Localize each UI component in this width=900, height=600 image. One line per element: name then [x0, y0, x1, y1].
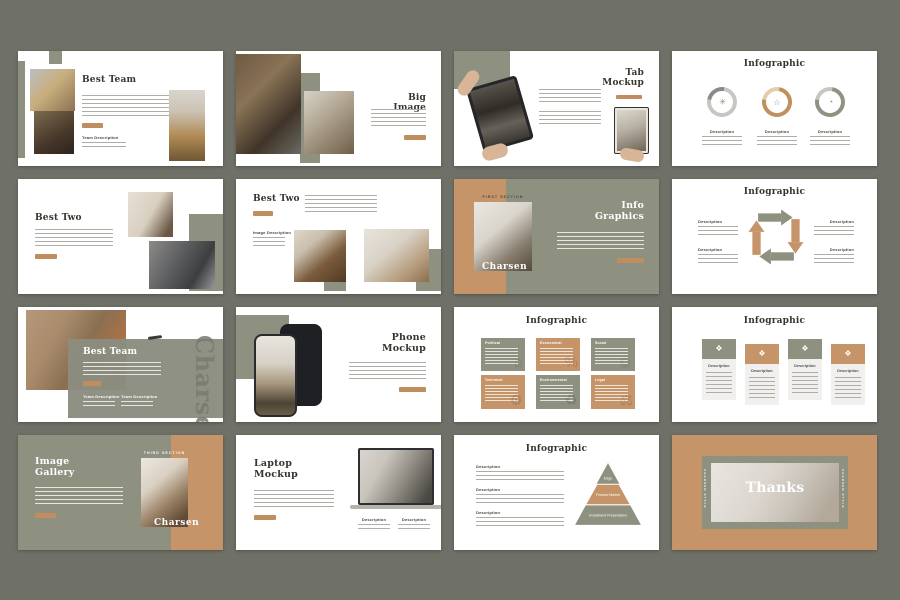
- greeked-text: [476, 494, 564, 504]
- box-label: Legal: [595, 378, 605, 382]
- description-label: Description: [757, 129, 797, 134]
- cta-button-graphic: [399, 387, 426, 392]
- greeked-paragraph: [254, 490, 334, 507]
- greeked-text: [476, 471, 564, 481]
- cta-button-graphic: [35, 513, 56, 518]
- description-label: Description: [476, 487, 500, 492]
- greeked-text: [476, 517, 564, 527]
- cta-button-graphic: [404, 135, 426, 140]
- description-label: Description: [698, 247, 722, 252]
- laptop-base: [350, 505, 441, 509]
- greeked-text: [253, 237, 285, 247]
- photo-office-overview: [236, 54, 301, 154]
- photo-portrait-coat: [169, 90, 205, 161]
- greeked-text: [814, 226, 854, 238]
- box-label: Economical: [540, 341, 562, 345]
- slide-thumb-laptop-mockup[interactable]: Laptop Mockup Description Description: [236, 435, 441, 550]
- cta-button-graphic: [253, 211, 273, 216]
- description-label: Description: [810, 129, 850, 134]
- greeked-paragraph: [83, 362, 161, 375]
- pestel-box-social: Social ☺: [591, 338, 635, 371]
- ornament-icon: ❖: [745, 344, 779, 364]
- greeked-text: [702, 136, 742, 147]
- info-card: ❖ Description: [831, 344, 865, 405]
- photo-walking-person: [128, 192, 173, 237]
- greeked-text: [835, 377, 861, 399]
- description-label: Description: [702, 129, 742, 134]
- description-label: Description: [814, 247, 854, 252]
- greeked-text: [698, 254, 738, 266]
- description-label: Description: [476, 510, 500, 515]
- team-description-label: Team Description: [121, 394, 157, 399]
- pestel-box-technical: Technical ⚙: [481, 375, 525, 409]
- slide-thumb-best-two-1[interactable]: Best Two: [18, 179, 223, 294]
- slide-thumb-infographic-pyramid[interactable]: Infographic Description Description Desc…: [454, 435, 659, 550]
- pie-chart-icon: ◔: [828, 98, 833, 107]
- slide-thumb-info-graphics[interactable]: First Section Charsen Info Graphics: [454, 179, 659, 294]
- greeked-paragraph: [371, 109, 426, 127]
- box-label: Technical: [485, 378, 503, 382]
- greeked-text: [358, 524, 390, 532]
- slide-title: Tab Mockup: [602, 68, 644, 88]
- slide-thumb-image-gallery[interactable]: Image Gallery Third Section Charsen: [18, 435, 223, 550]
- photo-person-laptop: [141, 458, 188, 527]
- donut-ring: ◔: [809, 81, 851, 123]
- greeked-paragraph: [305, 195, 377, 213]
- accent-square: [49, 51, 62, 64]
- slide-thumb-thanks[interactable]: Charsen Style Charsen Style Thanks: [672, 435, 877, 550]
- cta-button-graphic: [35, 254, 57, 259]
- slide-title: Thanks: [702, 481, 848, 497]
- donut-ring: ✳: [701, 81, 743, 123]
- box-label: Environmental: [540, 378, 567, 382]
- section-label: First Section: [474, 195, 532, 199]
- phone-device-front: [254, 334, 297, 417]
- description-label: Description: [396, 517, 432, 522]
- greeked-text: [749, 377, 775, 399]
- phone-screen-photo: [256, 336, 295, 415]
- slide-title: Laptop Mockup: [254, 459, 306, 480]
- gear-icon: ✳: [719, 98, 726, 107]
- slide-title: Best Two: [35, 213, 82, 223]
- slide-thumb-phone-mockup[interactable]: Phone Mockup: [236, 307, 441, 422]
- greeked-text: [83, 401, 115, 408]
- description-label: Description: [814, 219, 854, 224]
- laptop-screen-photo: [360, 450, 432, 503]
- donut-ring: ☆: [756, 81, 798, 123]
- greeked-paragraph: [539, 111, 601, 126]
- photo-office-interior: [474, 202, 532, 271]
- photo-cabinet-interior: [294, 230, 346, 282]
- star-icon: ☆: [773, 98, 780, 107]
- slide-title: Best Two: [253, 194, 300, 204]
- info-card: ❖ Description: [702, 339, 736, 400]
- box-label: Social: [595, 341, 607, 345]
- pyramid-tier-label: Edge: [604, 477, 612, 481]
- tablet-screen-photo: [617, 110, 646, 151]
- slide-thumb-best-team-overlay[interactable]: Charsen Best Team Team Description Team …: [18, 307, 223, 422]
- tablet-screen-photo: [470, 79, 531, 149]
- pestel-box-environmental: Environmental ♻: [536, 375, 580, 409]
- slide-thumb-big-image[interactable]: Big Image: [236, 51, 441, 166]
- box-label: Political: [485, 341, 500, 345]
- description-label: Description: [698, 219, 722, 224]
- photo-woman-laptop: [304, 91, 354, 154]
- info-card: ❖ Description: [745, 344, 779, 405]
- greeked-text: [792, 372, 818, 394]
- greeked-paragraph: [557, 232, 644, 250]
- slide-title: Infographic: [454, 316, 659, 326]
- slide-title: Infographic: [454, 444, 659, 454]
- slide-thumb-best-two-2[interactable]: Best Two Image Description: [236, 179, 441, 294]
- cta-button-graphic: [616, 95, 642, 99]
- greeked-text: [706, 372, 732, 394]
- description-label: Description: [702, 364, 736, 368]
- greeked-text: [82, 142, 126, 149]
- accent-bar: [18, 61, 25, 158]
- slide-title: Infographic: [672, 316, 877, 326]
- pestel-box-legal: Legal ⚖: [591, 375, 635, 409]
- slide-thumb-infographic-boxes[interactable]: Infographic Political ⌂ Economical % Soc…: [454, 307, 659, 422]
- slide-title: Best Team: [83, 347, 137, 357]
- greeked-text: [398, 524, 430, 532]
- photo-street-scene: [149, 241, 215, 289]
- scales-icon: ⚖: [620, 391, 633, 409]
- greeked-paragraph: [35, 229, 113, 246]
- slide-grid: Best Team Team Description Big Image Tab…: [18, 51, 877, 550]
- pyramid-tier-label: Finance Market: [596, 493, 620, 497]
- pestel-box-political: Political ⌂: [481, 338, 525, 371]
- cta-button-graphic: [617, 258, 644, 263]
- gear-icon: ⚙: [510, 391, 523, 409]
- greeked-text: [814, 254, 854, 266]
- slide-thumb-best-team[interactable]: Best Team Team Description: [18, 51, 223, 166]
- cycle-arrows-diagram: [744, 207, 808, 267]
- slide-title: Infographic: [672, 187, 877, 197]
- cta-button-graphic: [254, 515, 276, 520]
- cta-button-graphic: [83, 381, 101, 386]
- pyramid-diagram: Edge Finance Market Investment Presentat…: [572, 461, 644, 527]
- pyramid-tier-label: Investment Presentation: [589, 514, 627, 518]
- greeked-paragraph: [539, 89, 601, 104]
- section-label: Third Section: [141, 451, 188, 455]
- greeked-paragraph: [35, 487, 123, 504]
- ornament-icon: ❖: [788, 339, 822, 359]
- slide-title: Best Team: [82, 75, 136, 85]
- brand-wordmark-vertical: Charsen: [190, 335, 219, 419]
- people-icon: ☺: [618, 354, 633, 371]
- description-label: Description: [476, 464, 500, 469]
- brand-wordmark: Charsen: [482, 262, 527, 272]
- team-description-label: Team Description: [83, 394, 119, 399]
- greeked-paragraph: [82, 95, 170, 116]
- slide-thumb-infographic-cards[interactable]: Infographic ❖ Description ❖ Description …: [672, 307, 877, 422]
- info-card: ❖ Description: [788, 339, 822, 400]
- brand-wordmark: Charsen: [154, 518, 199, 528]
- tablet-device: [466, 75, 534, 153]
- cta-button-graphic: [82, 123, 103, 128]
- ornament-icon: ❖: [831, 344, 865, 364]
- greeked-text: [121, 401, 153, 408]
- template-gallery-canvas: { "page": { "background": "#6f7067" }, "…: [0, 0, 900, 600]
- recycle-icon: ♻: [565, 391, 578, 409]
- tablet-device-small: [614, 107, 649, 154]
- slide-thumb-infographic-donuts[interactable]: Infographic ✳ ☆ ◔ Description Descriptio…: [672, 51, 877, 166]
- ornament-icon: ❖: [702, 339, 736, 359]
- slide-title: Infographic: [672, 59, 877, 69]
- greeked-text: [757, 136, 797, 147]
- photo-team-woman: [30, 69, 75, 111]
- pestel-box-economical: Economical %: [536, 338, 580, 371]
- photo-dining-interior: [364, 229, 429, 282]
- slide-thumb-infographic-cycle[interactable]: Infographic Description Description Desc…: [672, 179, 877, 294]
- description-label: Description: [788, 364, 822, 368]
- slide-title: Phone Mockup: [378, 333, 426, 354]
- greeked-text: [810, 136, 850, 147]
- team-description-label: Team Description: [82, 135, 118, 140]
- description-label: Description: [831, 369, 865, 373]
- photo-team-man: [34, 111, 74, 154]
- percent-icon: %: [565, 354, 578, 371]
- building-icon: ⌂: [514, 354, 523, 371]
- greeked-paragraph: [349, 362, 426, 379]
- slide-title: Image Gallery: [35, 457, 87, 478]
- slide-thumb-tab-mockup[interactable]: Tab Mockup: [454, 51, 659, 166]
- description-label: Description: [356, 517, 392, 522]
- image-description-label: Image Description: [253, 230, 291, 235]
- description-label: Description: [745, 369, 779, 373]
- greeked-text: [698, 226, 738, 238]
- slide-title: Info Graphics: [592, 201, 644, 222]
- laptop-screen: [358, 448, 434, 505]
